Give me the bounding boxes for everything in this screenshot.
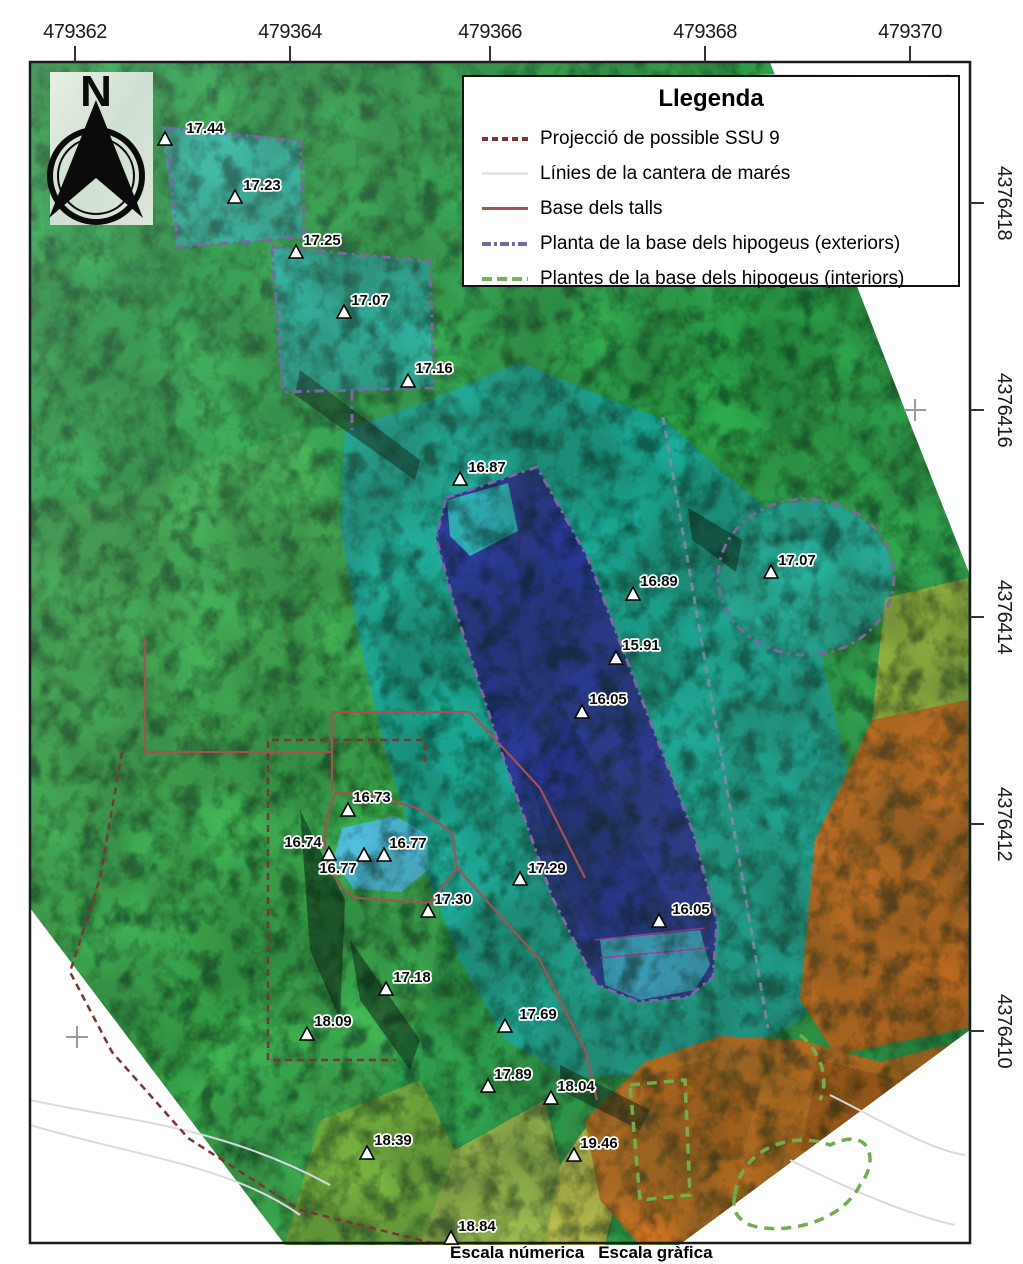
- elevation-label: 17.44: [186, 120, 224, 137]
- axis-right-tick-label: 4376418: [993, 166, 1015, 241]
- elevation-label: 17.29: [528, 860, 566, 877]
- legend-item-label: Base dels talls: [540, 198, 663, 220]
- legend-line-swatch: [482, 242, 528, 246]
- axis-right-tick-label: 4376410: [993, 994, 1015, 1069]
- legend-item: Línies de la cantera de marés: [464, 156, 958, 191]
- elevation-label: 17.18: [393, 969, 431, 986]
- elevation-label: 17.07: [351, 292, 389, 309]
- grid-cross: [66, 1026, 88, 1048]
- axis-top-tick-label: 479362: [43, 21, 107, 43]
- elevation-label: 18.39: [374, 1132, 412, 1149]
- north-arrow: N: [49, 67, 153, 225]
- elevation-label: 17.25: [303, 232, 341, 249]
- elevation-label: 16.89: [640, 573, 678, 590]
- graphic-scale-label: Escala gràfica: [598, 1243, 712, 1263]
- elevation-label: 16.73: [353, 789, 391, 806]
- axis-right: 43764184376416437641443764124376410: [970, 166, 1015, 1069]
- legend-item-label: Planta de la base dels hipogeus (exterio…: [540, 233, 900, 255]
- axis-top: 479362479364479366479368479370: [43, 21, 942, 62]
- elevation-label: 17.89: [494, 1066, 532, 1083]
- legend-item-label: Línies de la cantera de marés: [540, 163, 790, 185]
- legend-item-label: Projecció de possible SSU 9: [540, 128, 780, 150]
- axis-right-tick-label: 4376414: [993, 580, 1015, 655]
- legend-title: Llegenda: [464, 85, 958, 113]
- scale-caption: Escala númerica Escala gràfica: [450, 1243, 713, 1263]
- map-page: N 479362479364479366479368479370 4376418…: [0, 0, 1023, 1264]
- legend-line-swatch: [482, 207, 528, 210]
- elevation-label: 16.05: [672, 901, 710, 918]
- legend-item: Plantes de la base dels hipogeus (interi…: [464, 261, 958, 296]
- elevation-label: 17.16: [415, 360, 453, 377]
- axis-top-tick-label: 479364: [258, 21, 322, 43]
- north-label: N: [80, 67, 112, 116]
- numeric-scale-label: Escala númerica: [450, 1243, 584, 1263]
- elevation-label: 16.87: [468, 459, 506, 476]
- elevation-label: 18.09: [314, 1013, 352, 1030]
- axis-top-tick-label: 479370: [878, 21, 942, 43]
- legend-item: Base dels talls: [464, 191, 958, 226]
- elevation-label: 17.07: [778, 552, 816, 569]
- legend-line-swatch: [482, 277, 528, 281]
- axis-right-tick-label: 4376416: [993, 373, 1015, 448]
- elevation-label: 17.30: [434, 891, 472, 908]
- legend-box: Llegenda Projecció de possible SSU 9Líni…: [462, 75, 960, 287]
- elevation-label: 16.77: [389, 835, 427, 852]
- legend-item: Projecció de possible SSU 9: [464, 121, 958, 156]
- elevation-label: 17.69: [519, 1006, 557, 1023]
- legend-line-swatch: [482, 137, 528, 141]
- elevation-label: 16.77: [319, 860, 357, 877]
- axis-right-tick-label: 4376412: [993, 787, 1015, 862]
- elevation-label: 18.04: [557, 1078, 595, 1095]
- legend-item: Planta de la base dels hipogeus (exterio…: [464, 226, 958, 261]
- legend-item-label: Plantes de la base dels hipogeus (interi…: [540, 268, 904, 290]
- elevation-label: 16.74: [284, 834, 322, 851]
- elevation-label: 17.23: [243, 177, 281, 194]
- elevation-label: 19.46: [580, 1135, 618, 1152]
- axis-top-tick-label: 479366: [458, 21, 522, 43]
- legend-line-swatch: [482, 172, 528, 175]
- elevation-label: 18.84: [458, 1218, 496, 1235]
- axis-top-tick-label: 479368: [673, 21, 737, 43]
- elevation-label: 15.91: [622, 637, 660, 654]
- elevation-label: 16.05: [589, 691, 627, 708]
